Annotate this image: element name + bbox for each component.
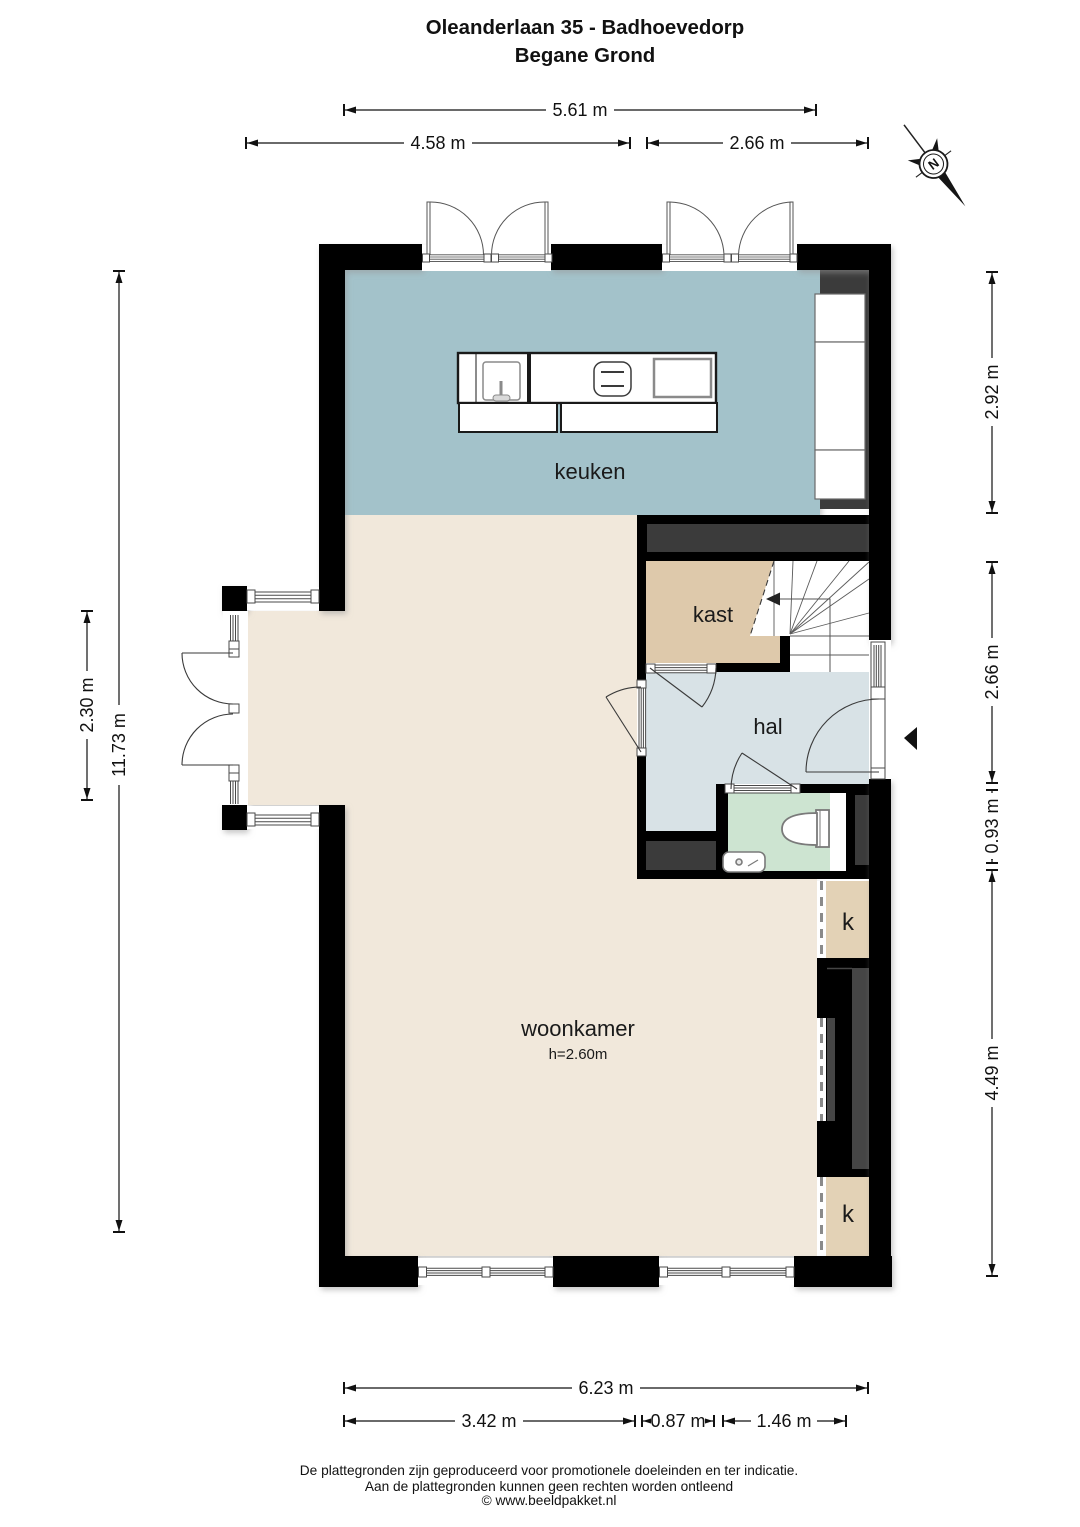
svg-text:11.73 m: 11.73 m [109,713,129,777]
svg-text:2.30 m: 2.30 m [77,677,97,732]
svg-text:4.49 m: 4.49 m [982,1045,1002,1100]
svg-text:2.66 m: 2.66 m [982,644,1002,699]
svg-text:hal: hal [753,714,782,739]
svg-text:kast: kast [693,602,733,627]
svg-text:0.93 m: 0.93 m [982,798,1002,853]
svg-text:k: k [842,1201,855,1228]
svg-text:5.61 m: 5.61 m [552,100,607,120]
svg-text:2.66 m: 2.66 m [729,133,784,153]
svg-text:3.42 m: 3.42 m [461,1411,516,1431]
svg-text:© www.beeldpakket.nl: © www.beeldpakket.nl [482,1493,617,1508]
svg-text:4.58 m: 4.58 m [410,133,465,153]
svg-text:Aan de plattegronden kunnen ge: Aan de plattegronden kunnen geen rechten… [365,1479,733,1494]
svg-text:keuken: keuken [555,459,626,484]
svg-text:2.92 m: 2.92 m [982,364,1002,419]
svg-text:6.23 m: 6.23 m [578,1378,633,1398]
svg-text:1.46 m: 1.46 m [756,1411,811,1431]
svg-text:Oleanderlaan 35 - Badhoevedorp: Oleanderlaan 35 - Badhoevedorp [426,17,744,39]
svg-text:0.87 m: 0.87 m [650,1411,705,1431]
svg-text:woonkamer: woonkamer [520,1016,635,1041]
svg-text:Begane Grond: Begane Grond [515,45,655,67]
svg-text:k: k [842,909,855,936]
svg-text:De plattegronden zijn geproduc: De plattegronden zijn geproduceerd voor … [300,1463,798,1478]
svg-text:h=2.60m: h=2.60m [549,1046,608,1063]
